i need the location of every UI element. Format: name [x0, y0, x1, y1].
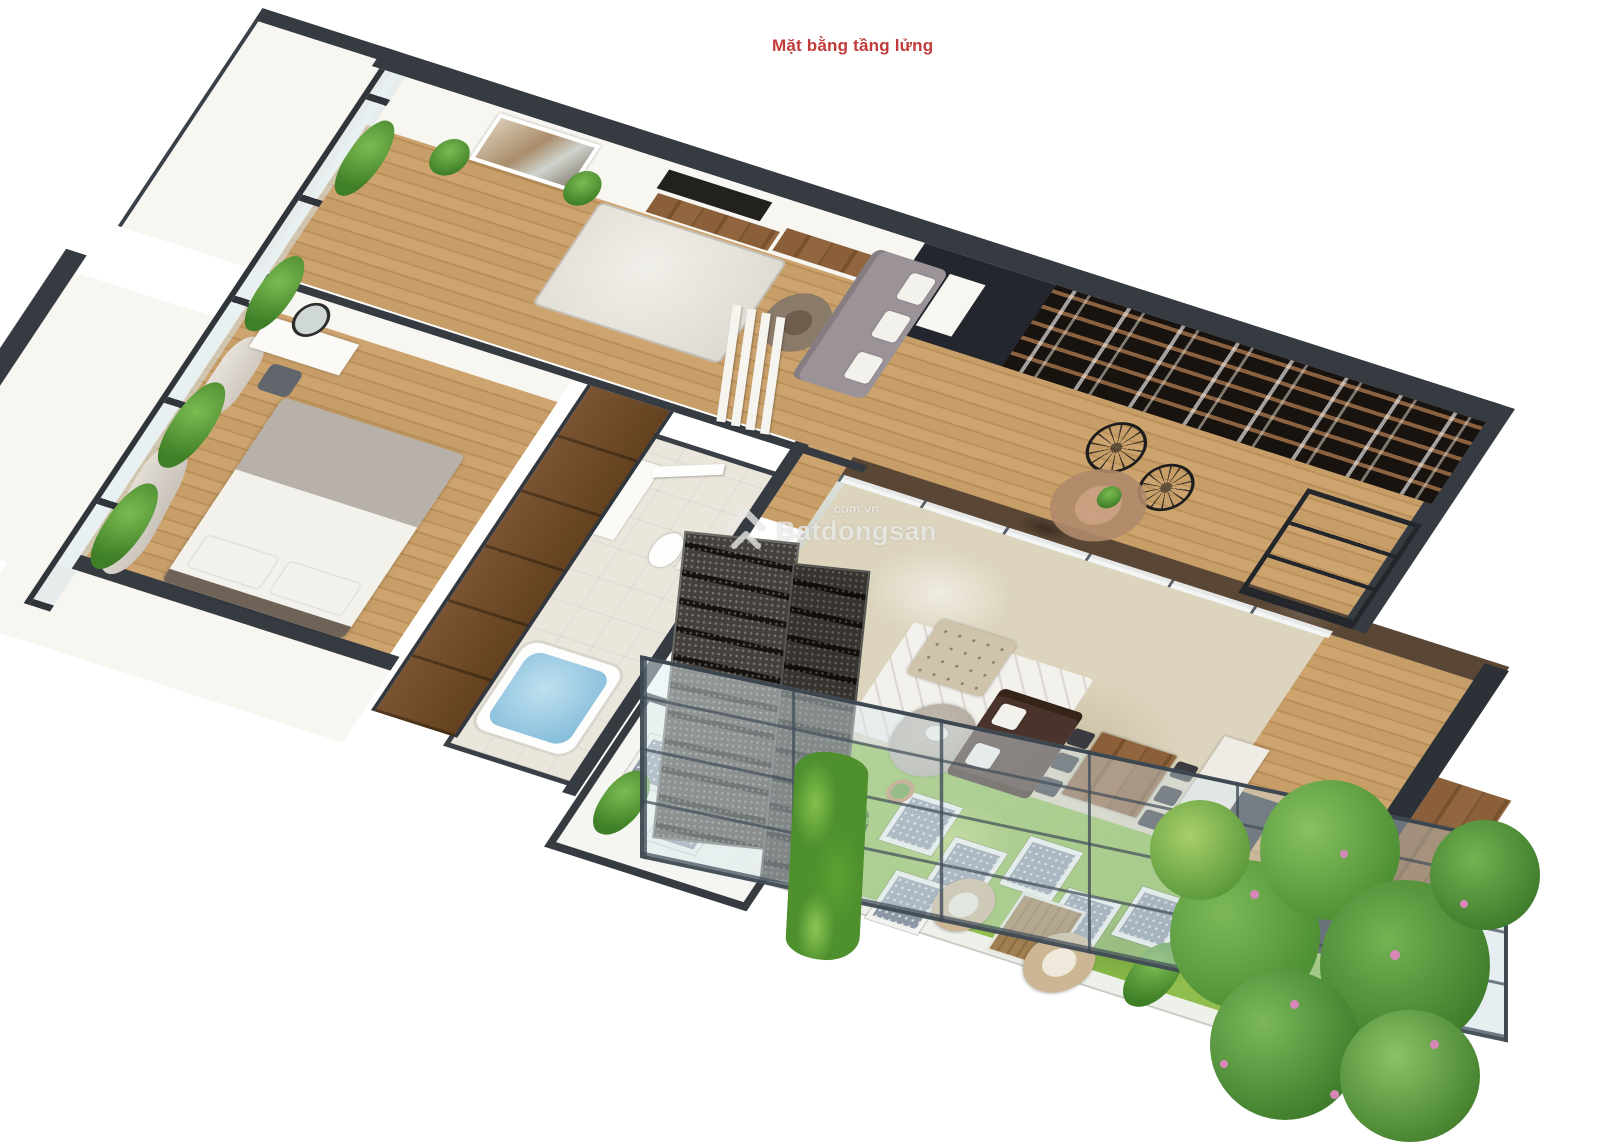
- watermark-logo-icon: [722, 504, 770, 556]
- tree-foliage: [1150, 800, 1250, 900]
- tree-flower: [1290, 1000, 1299, 1009]
- watermark-name: Batdongsan: [776, 516, 937, 547]
- tree-foliage: [1340, 1010, 1480, 1142]
- tree-flower: [1330, 1090, 1339, 1099]
- watermark-domain: .com.vn: [830, 501, 879, 516]
- tall-hedge: [785, 750, 870, 962]
- tree-flower: [1340, 850, 1348, 858]
- tree-flower: [1390, 950, 1400, 960]
- building-plan: [394, 75, 409, 87]
- tree-flower: [1430, 1040, 1439, 1049]
- watermark: .com.vn Batdongsan: [722, 502, 942, 562]
- mezzanine-floor-plan-render: .com.vn Batdongsan Mặt bằng tầng lửng: [0, 0, 1600, 1142]
- sofa-pillow: [990, 703, 1028, 731]
- page-title: Mặt bằng tầng lửng: [772, 36, 933, 56]
- flowering-tree: [1130, 740, 1550, 1142]
- tree-flower: [1250, 890, 1259, 899]
- tree-flower: [1460, 900, 1468, 908]
- tree-flower: [1220, 1060, 1228, 1068]
- tree-foliage: [1430, 820, 1540, 930]
